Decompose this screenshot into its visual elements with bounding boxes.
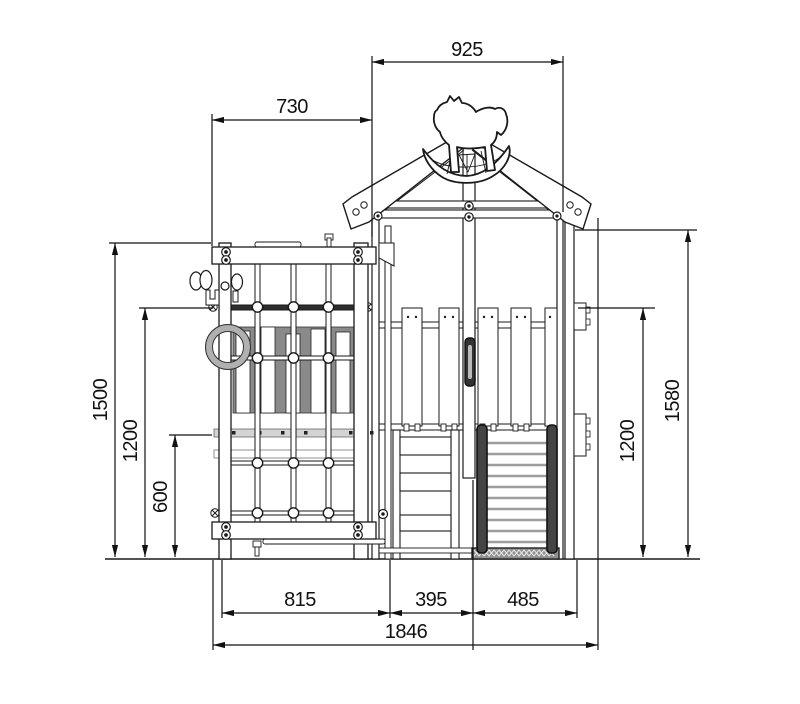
dim-total-width: 1846 — [213, 621, 598, 645]
net-frame — [190, 234, 385, 559]
dim-label-roof-width: 925 — [451, 39, 483, 61]
dim-label-steps-width: 395 — [415, 589, 447, 611]
dim-net-frame-width: 730 — [212, 96, 372, 246]
dim-label-net-base-width: 815 — [284, 589, 316, 611]
dim-label-net-frame-width: 730 — [276, 96, 308, 118]
dim-label-holds-band-height: 600 — [150, 481, 172, 513]
tower — [343, 96, 591, 559]
blueprint-page: 925 730 1500 1200 600 1200 — [0, 0, 800, 704]
dim-label-total-width: 1846 — [385, 621, 428, 643]
dim-holds-band-height: 600 — [150, 435, 212, 557]
elevation-drawing: 925 730 1500 1200 600 1200 — [0, 0, 800, 704]
dim-label-tower-height: 1580 — [662, 379, 684, 422]
dim-label-ramp-width: 485 — [507, 589, 539, 611]
dim-tower-height: 1580 — [575, 230, 697, 557]
dim-label-net-frame-height: 1500 — [90, 378, 112, 421]
climbing-ramp — [472, 425, 559, 559]
grip-knobs — [190, 271, 243, 306]
dim-ramp-width: 485 — [473, 589, 577, 613]
dim-net-rail-height: 1200 — [120, 308, 213, 557]
center-post — [463, 148, 475, 478]
dim-label-net-rail-height: 1200 — [120, 419, 142, 462]
top-beam — [212, 234, 376, 264]
post-handle — [465, 338, 475, 386]
dim-net-base-width: 815 — [222, 589, 390, 613]
dim-label-tower-rail-height: 1200 — [617, 419, 639, 462]
dim-steps-width: 395 — [390, 589, 473, 613]
